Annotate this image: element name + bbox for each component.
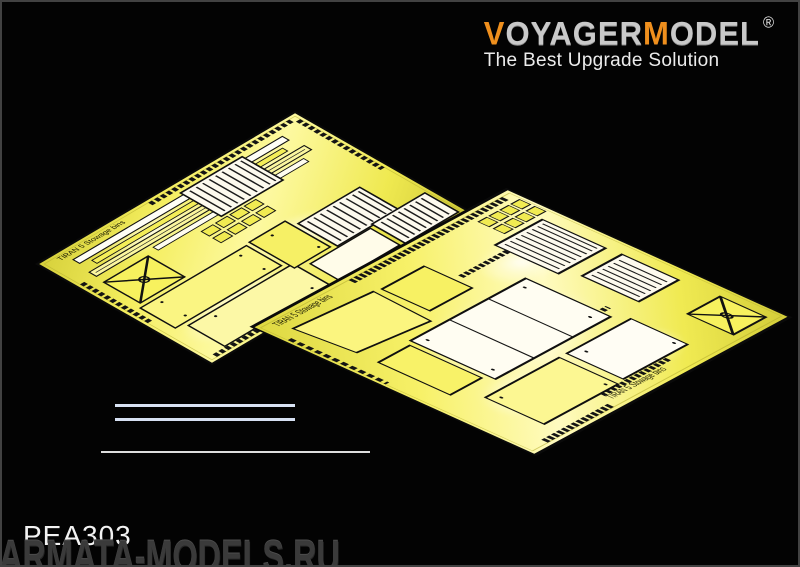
brand-logo: VOYAGERMODEL® The Best Upgrade Solution xyxy=(484,15,774,72)
photo-etch-frets-artwork: TIRAN 5 Stowage bins xyxy=(2,2,800,567)
watermark-text: ARMATA-MODELS.RU xyxy=(0,534,340,567)
product-image-canvas: TIRAN 5 Stowage bins xyxy=(0,0,800,567)
rule-line-3 xyxy=(101,451,370,453)
rule-line-1 xyxy=(115,404,295,407)
brand-wordmark: VOYAGERMODEL® xyxy=(484,15,774,50)
brand-text-oyager: OYAGER xyxy=(505,15,643,52)
brand-tagline: The Best Upgrade Solution xyxy=(484,50,774,72)
brand-text-odel: ODEL xyxy=(670,15,760,52)
rule-line-2 xyxy=(115,418,295,421)
brand-letter-m: M xyxy=(643,15,670,52)
registered-trademark-symbol: ® xyxy=(763,14,774,32)
brand-letter-v: V xyxy=(484,15,506,52)
